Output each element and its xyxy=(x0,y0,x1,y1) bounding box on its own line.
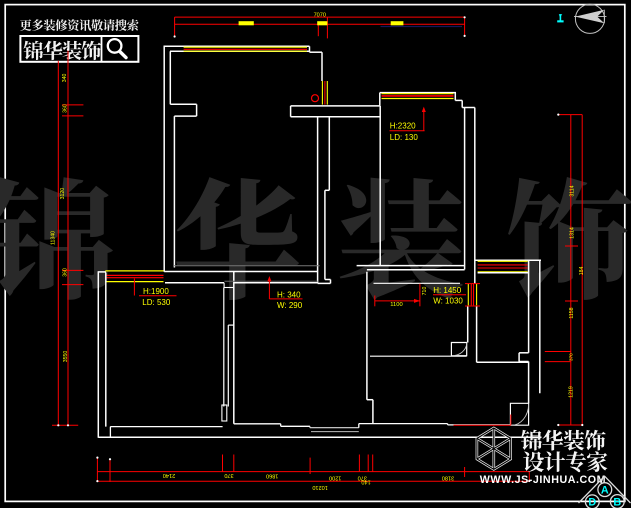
svg-text:H:2320: H:2320 xyxy=(390,122,416,131)
svg-text:1219: 1219 xyxy=(569,386,575,398)
svg-text:3550: 3550 xyxy=(63,351,69,363)
svg-text:2140: 2140 xyxy=(163,472,175,478)
svg-text:H: 1450: H: 1450 xyxy=(433,286,462,295)
svg-text:WWW.JS-JINHUA.COM: WWW.JS-JINHUA.COM xyxy=(480,474,606,486)
svg-text:3180: 3180 xyxy=(442,475,454,481)
svg-text:3120: 3120 xyxy=(60,188,66,200)
svg-text:H: 340: H: 340 xyxy=(277,291,301,300)
svg-text:1200: 1200 xyxy=(329,475,341,481)
svg-text:140: 140 xyxy=(361,479,370,485)
svg-text:370: 370 xyxy=(224,472,233,478)
svg-text:10210: 10210 xyxy=(312,484,328,490)
svg-text:1314: 1314 xyxy=(570,227,576,239)
svg-text:A: A xyxy=(601,485,609,497)
svg-text:1100: 1100 xyxy=(390,302,402,308)
svg-text:360: 360 xyxy=(63,268,69,277)
svg-text:LD: 530: LD: 530 xyxy=(142,298,171,307)
svg-text:1860: 1860 xyxy=(266,472,278,478)
svg-text:D: D xyxy=(588,497,596,508)
svg-text:360: 360 xyxy=(63,104,69,113)
svg-text:184: 184 xyxy=(579,266,585,275)
svg-text:1158: 1158 xyxy=(569,307,575,318)
svg-text:B: B xyxy=(613,497,621,508)
svg-text:340: 340 xyxy=(62,73,68,82)
svg-text:11340: 11340 xyxy=(51,231,57,245)
svg-text:710: 710 xyxy=(422,287,428,296)
svg-text:3114: 3114 xyxy=(570,185,576,196)
svg-text:7070: 7070 xyxy=(314,13,326,19)
svg-text:LD: 130: LD: 130 xyxy=(390,133,419,142)
svg-text:H:1900: H:1900 xyxy=(143,287,169,296)
svg-text:W: 290: W: 290 xyxy=(277,301,303,310)
svg-text:370: 370 xyxy=(569,353,574,361)
svg-text:W: 1030: W: 1030 xyxy=(433,296,463,305)
